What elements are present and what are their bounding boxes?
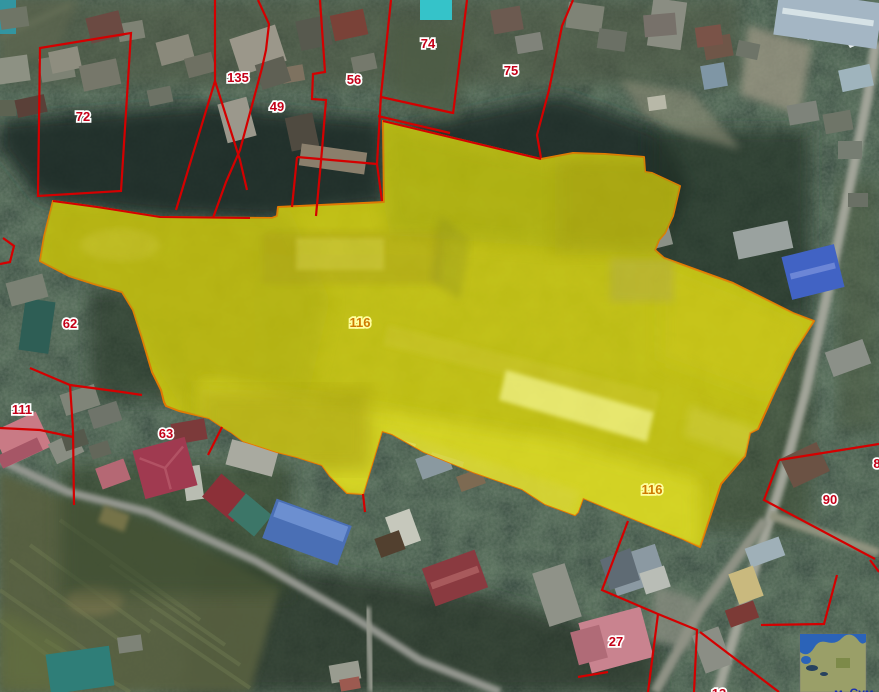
svg-text:75: 75: [504, 63, 518, 78]
svg-text:56: 56: [347, 72, 361, 87]
svg-text:116: 116: [350, 315, 371, 330]
svg-text:111: 111: [12, 402, 32, 417]
svg-text:135: 135: [227, 70, 249, 85]
svg-text:м. Сум: м. Сум: [834, 686, 874, 692]
svg-text:74: 74: [421, 36, 436, 51]
svg-text:72: 72: [76, 109, 90, 124]
svg-text:8: 8: [873, 456, 879, 471]
svg-text:116: 116: [642, 482, 663, 497]
svg-text:27: 27: [609, 634, 623, 649]
svg-text:49: 49: [270, 99, 284, 114]
svg-text:63: 63: [159, 426, 173, 441]
svg-text:90: 90: [823, 492, 837, 507]
svg-text:62: 62: [63, 316, 77, 331]
svg-text:13: 13: [712, 686, 726, 692]
